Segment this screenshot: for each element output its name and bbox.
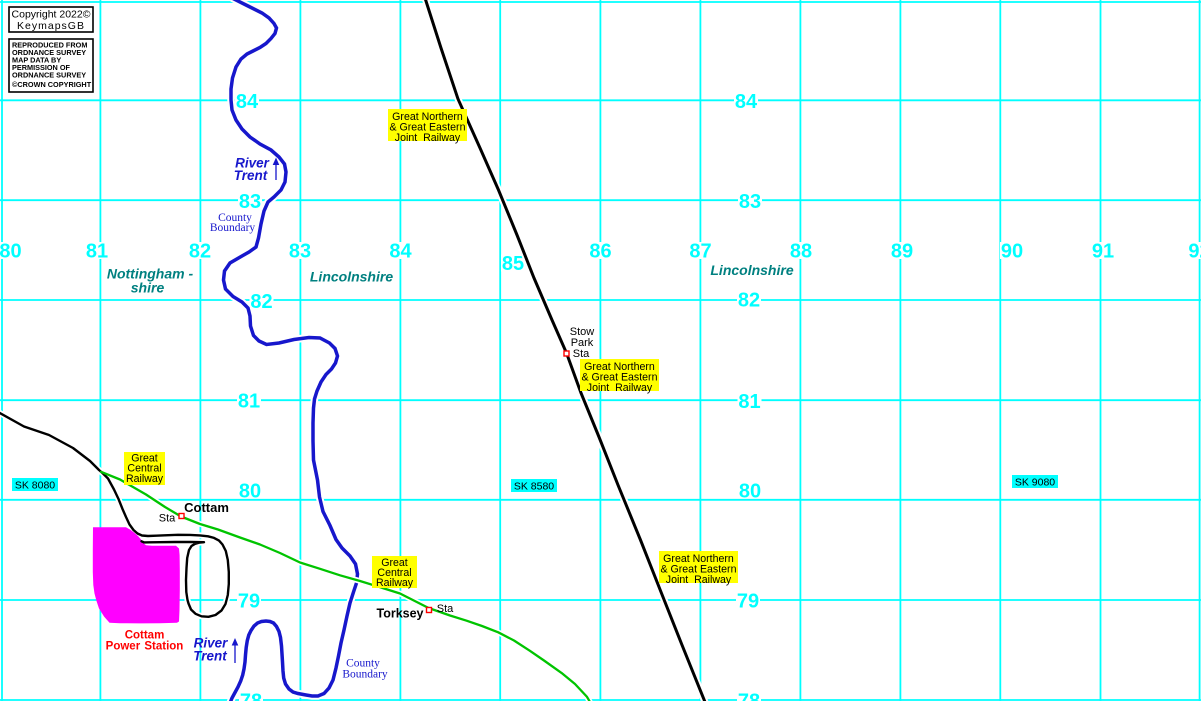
svg-text:Sta: Sta	[159, 513, 176, 525]
svg-text:Copyright 2022©: Copyright 2022©	[12, 9, 91, 21]
svg-text:89: 89	[891, 240, 913, 262]
svg-text:Joint Railway: Joint Railway	[587, 382, 653, 394]
svg-text:Sta: Sta	[437, 603, 454, 615]
svg-text:92: 92	[1188, 240, 1201, 262]
svg-text:Railway: Railway	[376, 577, 414, 589]
svg-text:Joint Railway: Joint Railway	[395, 132, 461, 144]
svg-text:80: 80	[739, 480, 761, 502]
svg-text:Lincolnshire: Lincolnshire	[710, 262, 793, 278]
svg-text:86: 86	[589, 240, 611, 262]
svg-text:90: 90	[1001, 240, 1023, 262]
svg-text:Boundary: Boundary	[210, 222, 256, 234]
svg-text:78: 78	[240, 690, 262, 701]
svg-text:Trent: Trent	[234, 168, 268, 183]
svg-text:81: 81	[86, 240, 108, 262]
svg-text:80: 80	[239, 480, 261, 502]
svg-text:Power Station: Power Station	[106, 641, 184, 653]
svg-text:81: 81	[238, 390, 260, 412]
svg-text:KeymapsGB: KeymapsGB	[17, 20, 85, 32]
svg-text:83: 83	[739, 191, 761, 213]
svg-text:82: 82	[738, 289, 760, 311]
svg-text:84: 84	[389, 240, 412, 262]
svg-text:SK 8580: SK 8580	[514, 480, 554, 492]
svg-text:Railway: Railway	[126, 473, 164, 485]
svg-text:Trent: Trent	[193, 649, 227, 664]
svg-text:Joint Railway: Joint Railway	[666, 574, 732, 586]
svg-text:78: 78	[738, 690, 760, 701]
svg-text:SK 8080: SK 8080	[15, 479, 55, 491]
svg-text:82: 82	[189, 240, 211, 262]
svg-text:79: 79	[238, 590, 260, 612]
svg-text:79: 79	[737, 590, 759, 612]
svg-text:83: 83	[289, 240, 311, 262]
svg-text:84: 84	[236, 91, 259, 113]
svg-text:84: 84	[735, 91, 758, 113]
svg-text:©CROWN COPYRIGHT: ©CROWN COPYRIGHT	[12, 80, 92, 89]
svg-text:Sta: Sta	[573, 348, 590, 360]
svg-text:Boundary: Boundary	[342, 669, 388, 681]
svg-text:85: 85	[502, 253, 524, 275]
svg-text:83: 83	[239, 191, 261, 213]
svg-text:shire: shire	[131, 280, 165, 296]
svg-text:81: 81	[738, 391, 760, 413]
svg-text:SK 9080: SK 9080	[1015, 476, 1055, 488]
svg-text:ORDNANCE SURVEY: ORDNANCE SURVEY	[12, 71, 86, 80]
svg-text:88: 88	[790, 240, 812, 262]
svg-text:91: 91	[1092, 240, 1114, 262]
svg-text:Cottam: Cottam	[184, 500, 229, 515]
svg-text:Torksey: Torksey	[376, 607, 423, 621]
svg-text:80: 80	[0, 240, 22, 262]
svg-text:87: 87	[689, 240, 711, 262]
svg-text:Lincolnshire: Lincolnshire	[310, 269, 393, 285]
svg-text:82: 82	[250, 291, 272, 313]
